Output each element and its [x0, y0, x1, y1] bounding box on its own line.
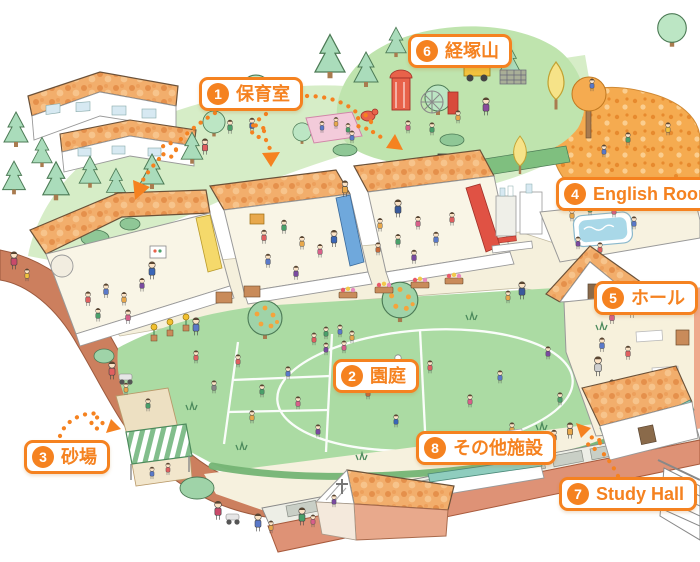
label-number-badge: 7 [567, 483, 589, 505]
map-label-nursery-rooms[interactable]: 1 保育室 [199, 77, 303, 111]
kindergarten-campus-map: 1 保育室 2 園庭 3 砂場 4 English Room 5 ホール 6 経… [0, 0, 700, 562]
label-text: 経塚山 [445, 41, 499, 62]
map-label-other-facilities[interactable]: 8 その他施設 [416, 431, 556, 465]
map-label-sandbox[interactable]: 3 砂場 [24, 440, 110, 474]
label-number-badge: 6 [416, 40, 438, 62]
spider-web-climber [421, 91, 443, 113]
arrow-to-sandbox [60, 413, 121, 436]
label-number-badge: 3 [32, 446, 54, 468]
map-label-garden[interactable]: 2 園庭 [333, 359, 419, 393]
map-label-kyozukayama[interactable]: 6 経塚山 [408, 34, 512, 68]
label-number-badge: 5 [602, 287, 624, 309]
label-number-badge: 1 [207, 83, 229, 105]
map-label-hall[interactable]: 5 ホール [594, 281, 698, 315]
label-number-badge: 4 [564, 183, 586, 205]
label-text: ホール [631, 288, 685, 309]
pool [573, 211, 633, 247]
grid-mat [500, 70, 526, 84]
label-text: 砂場 [61, 447, 97, 468]
label-text: 保育室 [236, 84, 290, 105]
label-text: その他施設 [453, 438, 543, 459]
label-number-badge: 2 [341, 365, 363, 387]
map-label-english-room[interactable]: 4 English Room [556, 177, 700, 211]
label-text: English Room [593, 184, 700, 205]
label-number-badge: 8 [424, 437, 446, 459]
label-text: Study Hall [596, 484, 684, 505]
label-text: 園庭 [370, 366, 406, 387]
map-label-study-hall[interactable]: 7 Study Hall [559, 477, 697, 511]
